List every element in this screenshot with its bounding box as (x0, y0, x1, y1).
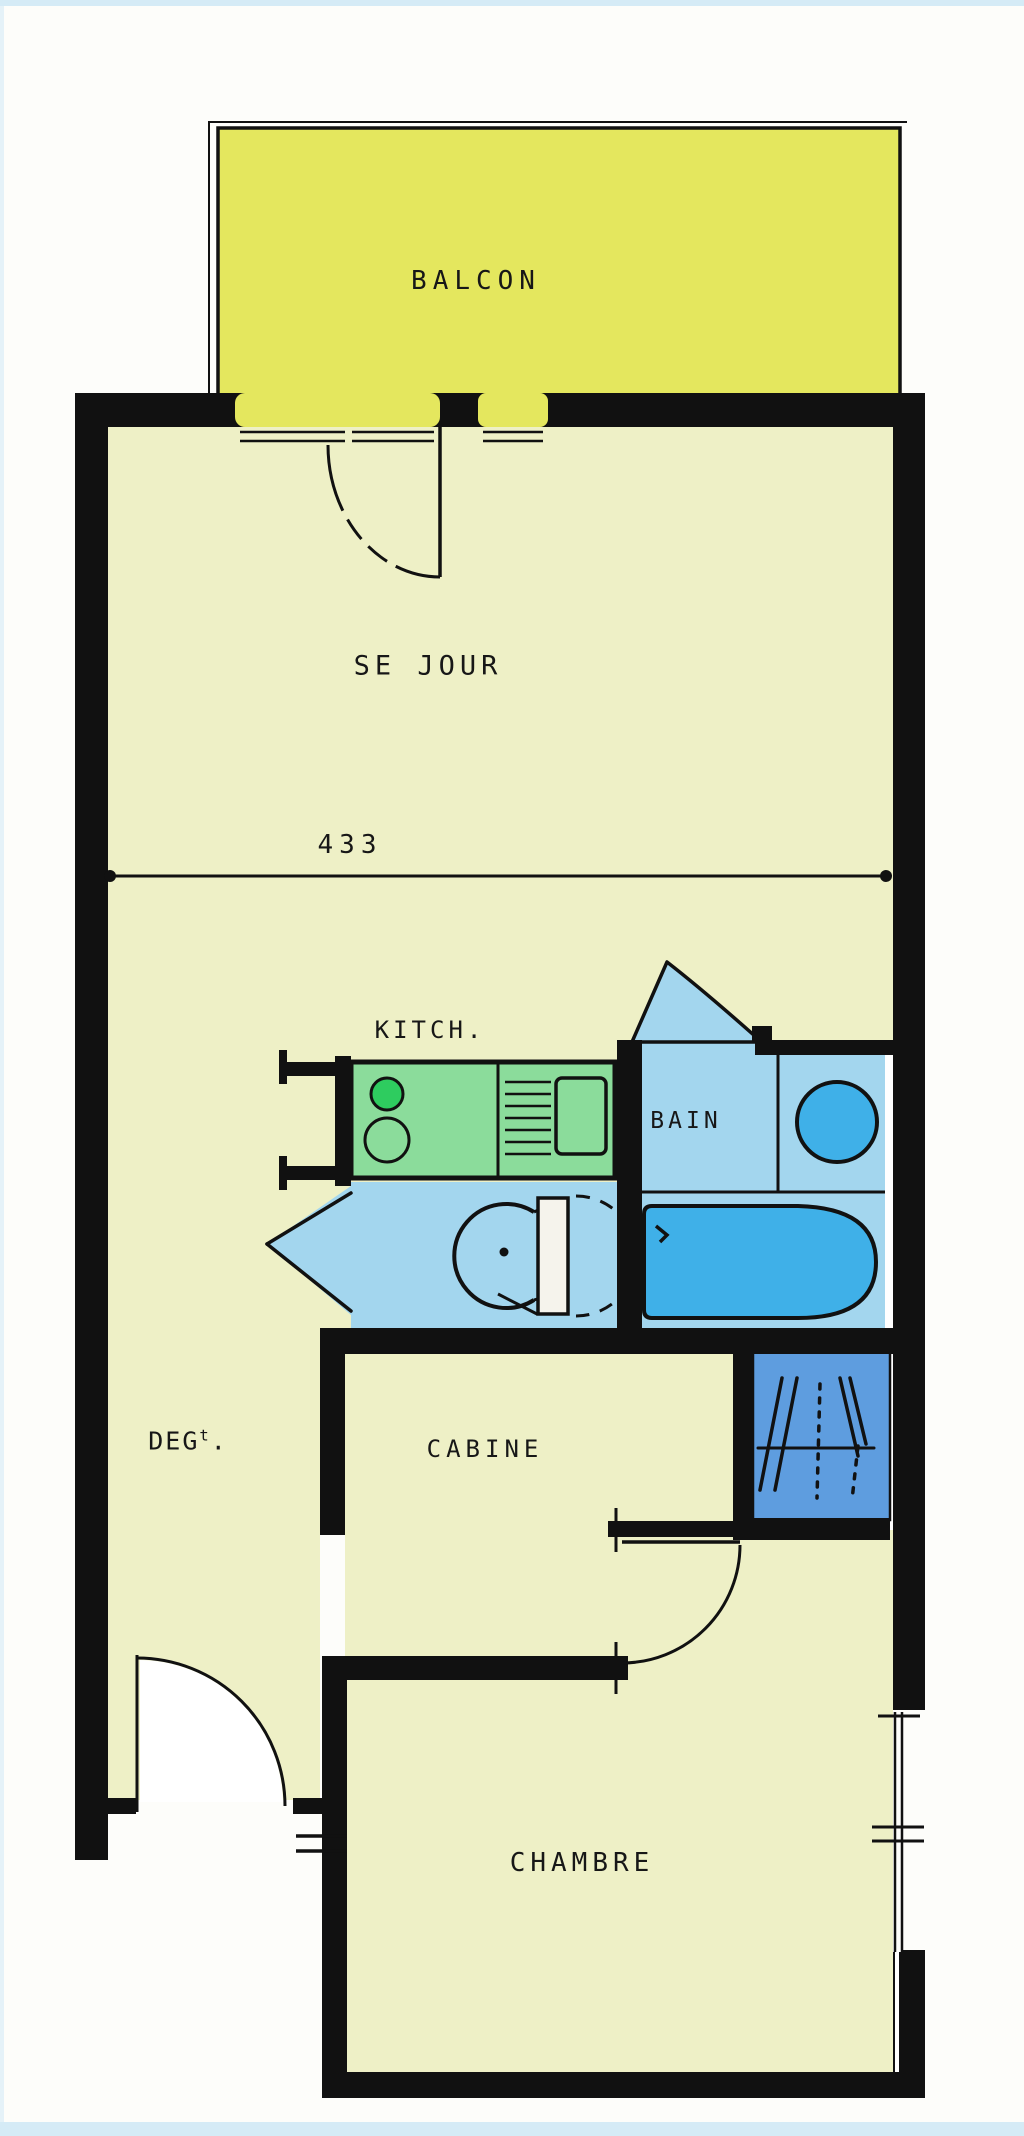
closet-area (753, 1352, 890, 1520)
toilet-tank (538, 1198, 568, 1314)
living-room-label: SE JOUR (354, 651, 503, 682)
kitchen-cap-bottom-tick (279, 1156, 287, 1190)
balcony-deck (218, 128, 900, 395)
sink-drainer (505, 1082, 551, 1154)
burner-small (371, 1078, 403, 1110)
balcony-door-opening (235, 393, 440, 427)
bedroom-north-wall (322, 1656, 628, 1680)
dimension-dot-right (880, 870, 892, 882)
bath-north-wall (755, 1040, 893, 1055)
kitchen-cap-top (281, 1062, 351, 1076)
hallway-label-dot: . (211, 1427, 228, 1456)
passage-floor (345, 1522, 893, 1662)
floor-plan-drawing (0, 0, 1024, 2136)
east-pier (901, 1950, 925, 2098)
entry-jamb-right (293, 1798, 322, 1814)
south-wall (322, 2072, 925, 2098)
hallway-label-main: DEG (148, 1427, 199, 1456)
bath-door-stub (752, 1026, 772, 1042)
cabin-label: CABINE (427, 1435, 544, 1463)
kitchen-counter (351, 1062, 615, 1178)
balcony-window-opening (478, 393, 548, 427)
bath-west-wall (617, 1040, 642, 1332)
floor-plan-page: BALCON SE JOUR 433 KITCH. BAIN DEGt. CAB… (0, 0, 1024, 2136)
closet-south-wall (733, 1518, 890, 1540)
entry-jamb-left (108, 1798, 136, 1814)
dimension-label: 433 (318, 830, 383, 860)
washbasin (797, 1082, 877, 1162)
bedroom-west-wall (322, 1656, 347, 2098)
hallway-label-sup: t (199, 1426, 210, 1444)
kitchen-cap-bottom (281, 1166, 351, 1180)
cabin-south-wall (608, 1521, 742, 1537)
east-wall (893, 393, 925, 1710)
hallway-label: DEGt. (148, 1426, 228, 1455)
cabin-west-wall (320, 1330, 345, 1535)
bedroom-label: CHAMBRE (510, 1848, 655, 1878)
bathtub (644, 1206, 876, 1318)
balcony-label: BALCON (411, 266, 541, 296)
dimension-dot-left (104, 870, 116, 882)
kitchen-cap-top-tick (279, 1050, 287, 1084)
kitchen-label: KITCH. (375, 1016, 486, 1044)
closet-west-wall (733, 1345, 753, 1540)
bathroom-label: BAIN (650, 1108, 721, 1134)
west-wall (75, 393, 108, 1860)
balcony-area (209, 122, 907, 397)
